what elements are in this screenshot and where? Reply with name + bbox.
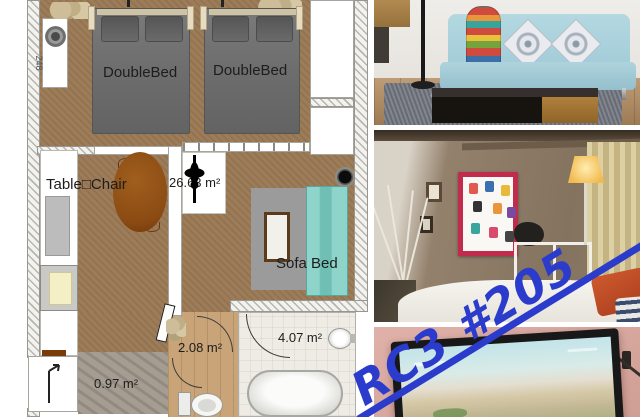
coffee-table-drawer	[542, 97, 598, 123]
poster-art	[469, 183, 478, 194]
striped-pillow	[615, 293, 640, 322]
double-bed-1-label: DoubleBed	[103, 64, 177, 81]
shelf-side	[374, 27, 389, 63]
bed-post	[200, 6, 207, 30]
red-framed-poster	[458, 172, 518, 256]
center-vertical-wall	[168, 146, 182, 316]
speaker-icon	[335, 167, 355, 187]
striped-doll	[466, 6, 501, 70]
poster-art	[507, 207, 516, 218]
balcony-upper	[310, 0, 354, 98]
hallway-area-label: 2.08 m²	[178, 340, 222, 355]
sofa-bed	[306, 186, 348, 296]
sliding-window-band	[182, 142, 310, 152]
floor-lamp-pole	[421, 0, 425, 84]
poster-art	[473, 201, 482, 212]
entrance-door-arrow-icon	[29, 357, 77, 411]
double-bed-2-label: DoubleBed	[213, 62, 287, 79]
pillow	[101, 16, 139, 42]
balcony-divider-wall	[310, 98, 354, 107]
bathroom-area-label: 4.07 m²	[278, 330, 322, 345]
toilet-bowl	[191, 393, 223, 417]
ceiling-fan-icon	[183, 153, 205, 205]
bed-post	[187, 6, 194, 30]
field-patch	[433, 408, 468, 417]
bed-post	[296, 6, 303, 30]
screen-osd-text	[567, 347, 597, 352]
toilet-bowl-inner	[198, 399, 216, 412]
balcony-lower	[310, 107, 354, 155]
kitchen-counter	[45, 196, 70, 256]
listing-collage: 248 DoubleBed DoubleBed	[0, 0, 640, 417]
entrance-door	[28, 356, 78, 412]
plant-decoration	[48, 2, 90, 19]
top-wall-tick	[127, 0, 130, 7]
right-outer-wall	[354, 0, 368, 312]
entrance-area-label: 0.97 m²	[94, 376, 138, 391]
washing-machine-icon	[45, 26, 66, 47]
poster-art	[505, 231, 514, 242]
sofa-leg	[622, 88, 626, 100]
pillow	[145, 16, 183, 42]
wood-shelf	[374, 0, 410, 27]
top-wall-tick	[221, 0, 224, 7]
floor-plan: 248 DoubleBed DoubleBed	[0, 0, 372, 417]
wall-dimension-label: 248	[34, 48, 44, 78]
table-chair-label: Table□Chair	[46, 176, 127, 193]
poster-art	[485, 181, 494, 192]
pillow	[256, 16, 293, 42]
bathtub	[247, 370, 343, 417]
sink-basin	[49, 272, 72, 305]
poster-art	[471, 223, 480, 234]
toilet-tank	[178, 392, 191, 416]
poster-art	[493, 203, 502, 214]
living-room-floor-lower	[78, 313, 168, 354]
bathroom-sink	[328, 328, 352, 349]
poster-art	[501, 185, 510, 196]
headboard	[209, 9, 297, 15]
bottom-horizontal-wall	[230, 300, 368, 312]
sofa-seat	[440, 62, 636, 90]
kitchen-sink-unit	[40, 265, 78, 311]
pillow	[212, 16, 249, 42]
bed-post	[88, 6, 95, 30]
sofa-bed-label: Sofa Bed	[276, 255, 338, 272]
small-picture-frame	[426, 182, 442, 202]
headboard	[97, 9, 187, 15]
photo-living-room	[374, 0, 640, 125]
poster-art	[489, 227, 498, 238]
sink-faucet	[350, 334, 356, 343]
